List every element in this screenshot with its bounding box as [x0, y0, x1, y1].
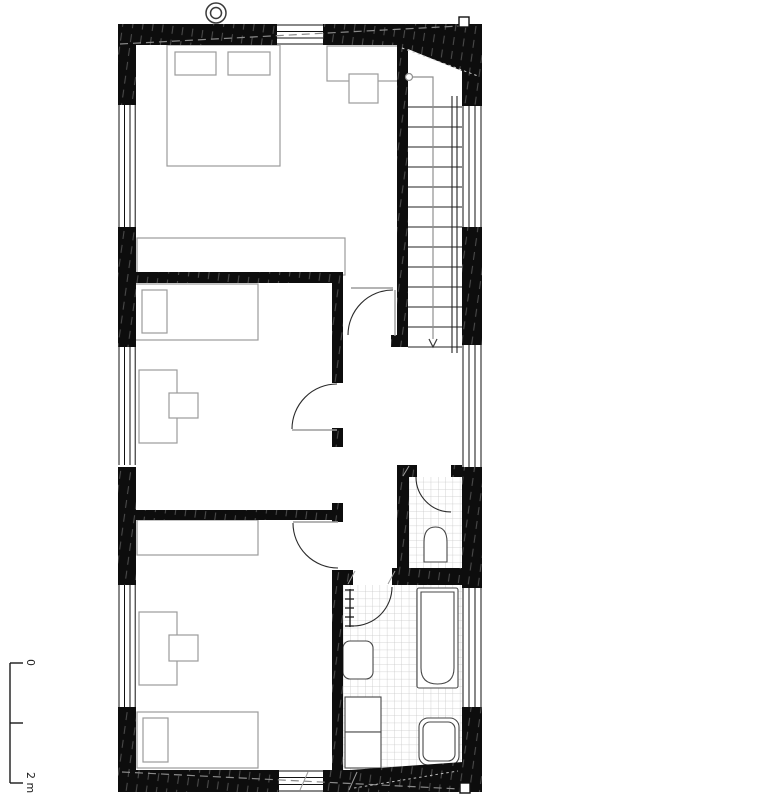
- door-bottom-bedroom: [293, 522, 338, 568]
- wall-wc-west: [397, 465, 409, 585]
- stair-walk-line: [406, 74, 438, 348]
- window-left-1: [118, 105, 136, 227]
- window-right-2: [462, 345, 482, 467]
- wall-stair-foot: [391, 335, 408, 347]
- desk-chair: [169, 635, 198, 661]
- corner-marker-top: [459, 17, 469, 27]
- bed-pillow: [175, 52, 216, 75]
- wall-bathroom-north-right: [392, 568, 463, 585]
- roof-vent-icon: [206, 3, 226, 23]
- window-right-1: [462, 106, 482, 227]
- wall-stairwell: [397, 45, 408, 347]
- down-arrow-icon: [429, 339, 437, 347]
- vanity-cabinet: [345, 697, 381, 732]
- window-left-2: [118, 347, 136, 465]
- stair-treads: [408, 107, 462, 347]
- vanity-cabinet: [345, 732, 381, 768]
- bed-pillow: [143, 718, 168, 762]
- shower-tray-inner: [423, 722, 455, 761]
- floor-plan-page: 0 2 m: [0, 0, 768, 804]
- bed-pillow: [228, 52, 270, 75]
- bathtub-inner: [421, 592, 454, 684]
- door-middle-bedroom: [292, 384, 337, 430]
- wall-hall-upper: [332, 272, 343, 383]
- staircase: [406, 74, 463, 354]
- wall-bathroom-north-left: [332, 570, 353, 585]
- window-left-3: [118, 585, 136, 707]
- stair-handrail: [452, 96, 457, 353]
- corner-marker-bottom: [460, 783, 470, 793]
- door-top-bedroom: [348, 288, 395, 336]
- scale-label-start: 0: [24, 659, 37, 666]
- desk-chair: [349, 74, 378, 103]
- wall-wc-north-left: [397, 465, 417, 477]
- wall-hall-stub: [332, 428, 343, 447]
- scale-bar: [10, 663, 23, 783]
- washbasin: [343, 641, 373, 679]
- floor-plan-drawing: 0 2 m: [0, 0, 768, 804]
- wardrobe: [137, 238, 345, 275]
- wall-wc-north-right: [451, 465, 463, 477]
- wall-top-middle: [118, 272, 343, 283]
- wall-middle-bottom: [118, 510, 343, 520]
- desk-chair: [169, 393, 198, 418]
- wall-bathroom-west: [332, 570, 343, 770]
- scale-label-end: 2 m: [24, 772, 37, 793]
- bed-pillow: [142, 290, 167, 333]
- window-right-3: [462, 588, 482, 707]
- toilet: [424, 527, 447, 562]
- window-top: [277, 24, 323, 45]
- wardrobe: [137, 520, 258, 555]
